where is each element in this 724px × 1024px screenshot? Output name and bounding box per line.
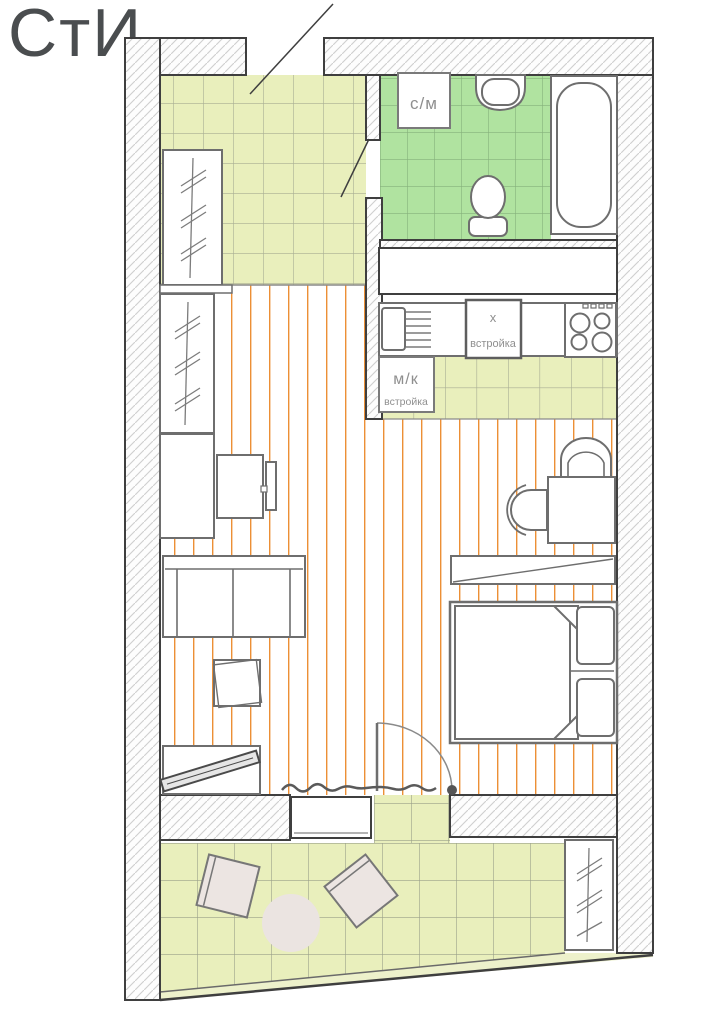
wall-right xyxy=(617,75,653,953)
kitchen-sink-basin xyxy=(382,308,405,350)
wall-top-right xyxy=(324,38,653,75)
wall-top-left xyxy=(160,38,246,75)
balcony-window xyxy=(291,797,371,838)
fridge-sublabel: встройка xyxy=(470,338,517,350)
bathtub xyxy=(551,76,617,234)
wardrobe-shelf xyxy=(160,285,232,293)
curtain-end-dot xyxy=(447,785,457,795)
wall-balcony-left xyxy=(160,795,290,840)
hall-cabinet xyxy=(160,434,214,538)
built-in-closet xyxy=(379,248,617,294)
pillow xyxy=(577,607,614,664)
builtin-label: м/к xyxy=(393,371,418,388)
balcony-table xyxy=(262,894,320,952)
balcony-chair xyxy=(196,854,259,917)
desk xyxy=(548,477,615,543)
pillow xyxy=(577,679,614,736)
bed-mattress xyxy=(455,606,570,739)
fridge-label: х xyxy=(490,310,497,325)
tv-mount xyxy=(261,486,267,492)
floor-plan-page: СтИ xyxy=(0,0,724,1024)
wall-balcony-right xyxy=(450,795,617,837)
toilet-base xyxy=(469,217,507,236)
desk-chair-left xyxy=(511,490,547,530)
sofa xyxy=(163,556,305,637)
wall-left xyxy=(125,38,160,1000)
wall-bathroom-partition-upper xyxy=(366,75,380,140)
floor-plan: с/м х встройка м/к встройка xyxy=(0,0,724,1024)
pouf xyxy=(214,660,260,706)
balcony-door-threshold-tiles xyxy=(374,795,450,843)
toilet-bowl xyxy=(471,176,505,218)
builtin-sublabel: встройка xyxy=(384,396,428,408)
washer-label: с/м xyxy=(410,94,438,113)
tv-table xyxy=(217,455,263,518)
